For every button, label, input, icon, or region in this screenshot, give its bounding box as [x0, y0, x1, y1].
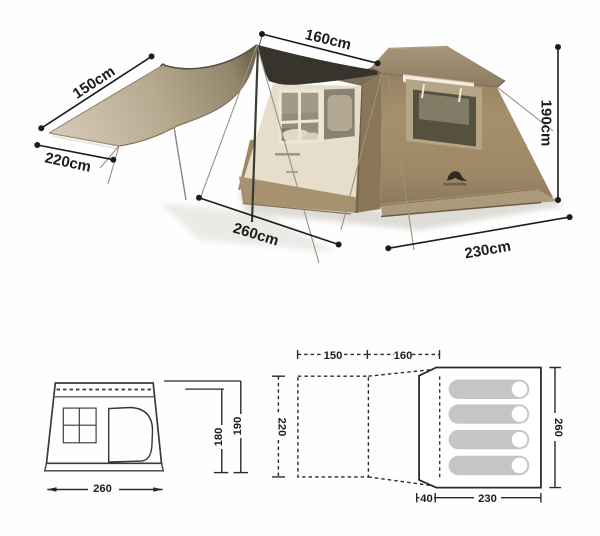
svg-text:260: 260 — [93, 483, 112, 495]
svg-text:180: 180 — [213, 428, 225, 447]
svg-text:230: 230 — [478, 493, 497, 505]
svg-text:190: 190 — [232, 417, 244, 436]
svg-text:260: 260 — [552, 418, 564, 437]
svg-text:160: 160 — [394, 350, 413, 362]
svg-text:150: 150 — [324, 350, 343, 362]
svg-text:220: 220 — [275, 418, 287, 437]
svg-text:Naturehike: Naturehike — [444, 182, 468, 188]
svg-text:190cm: 190cm — [538, 100, 555, 147]
svg-text:40: 40 — [420, 493, 432, 505]
